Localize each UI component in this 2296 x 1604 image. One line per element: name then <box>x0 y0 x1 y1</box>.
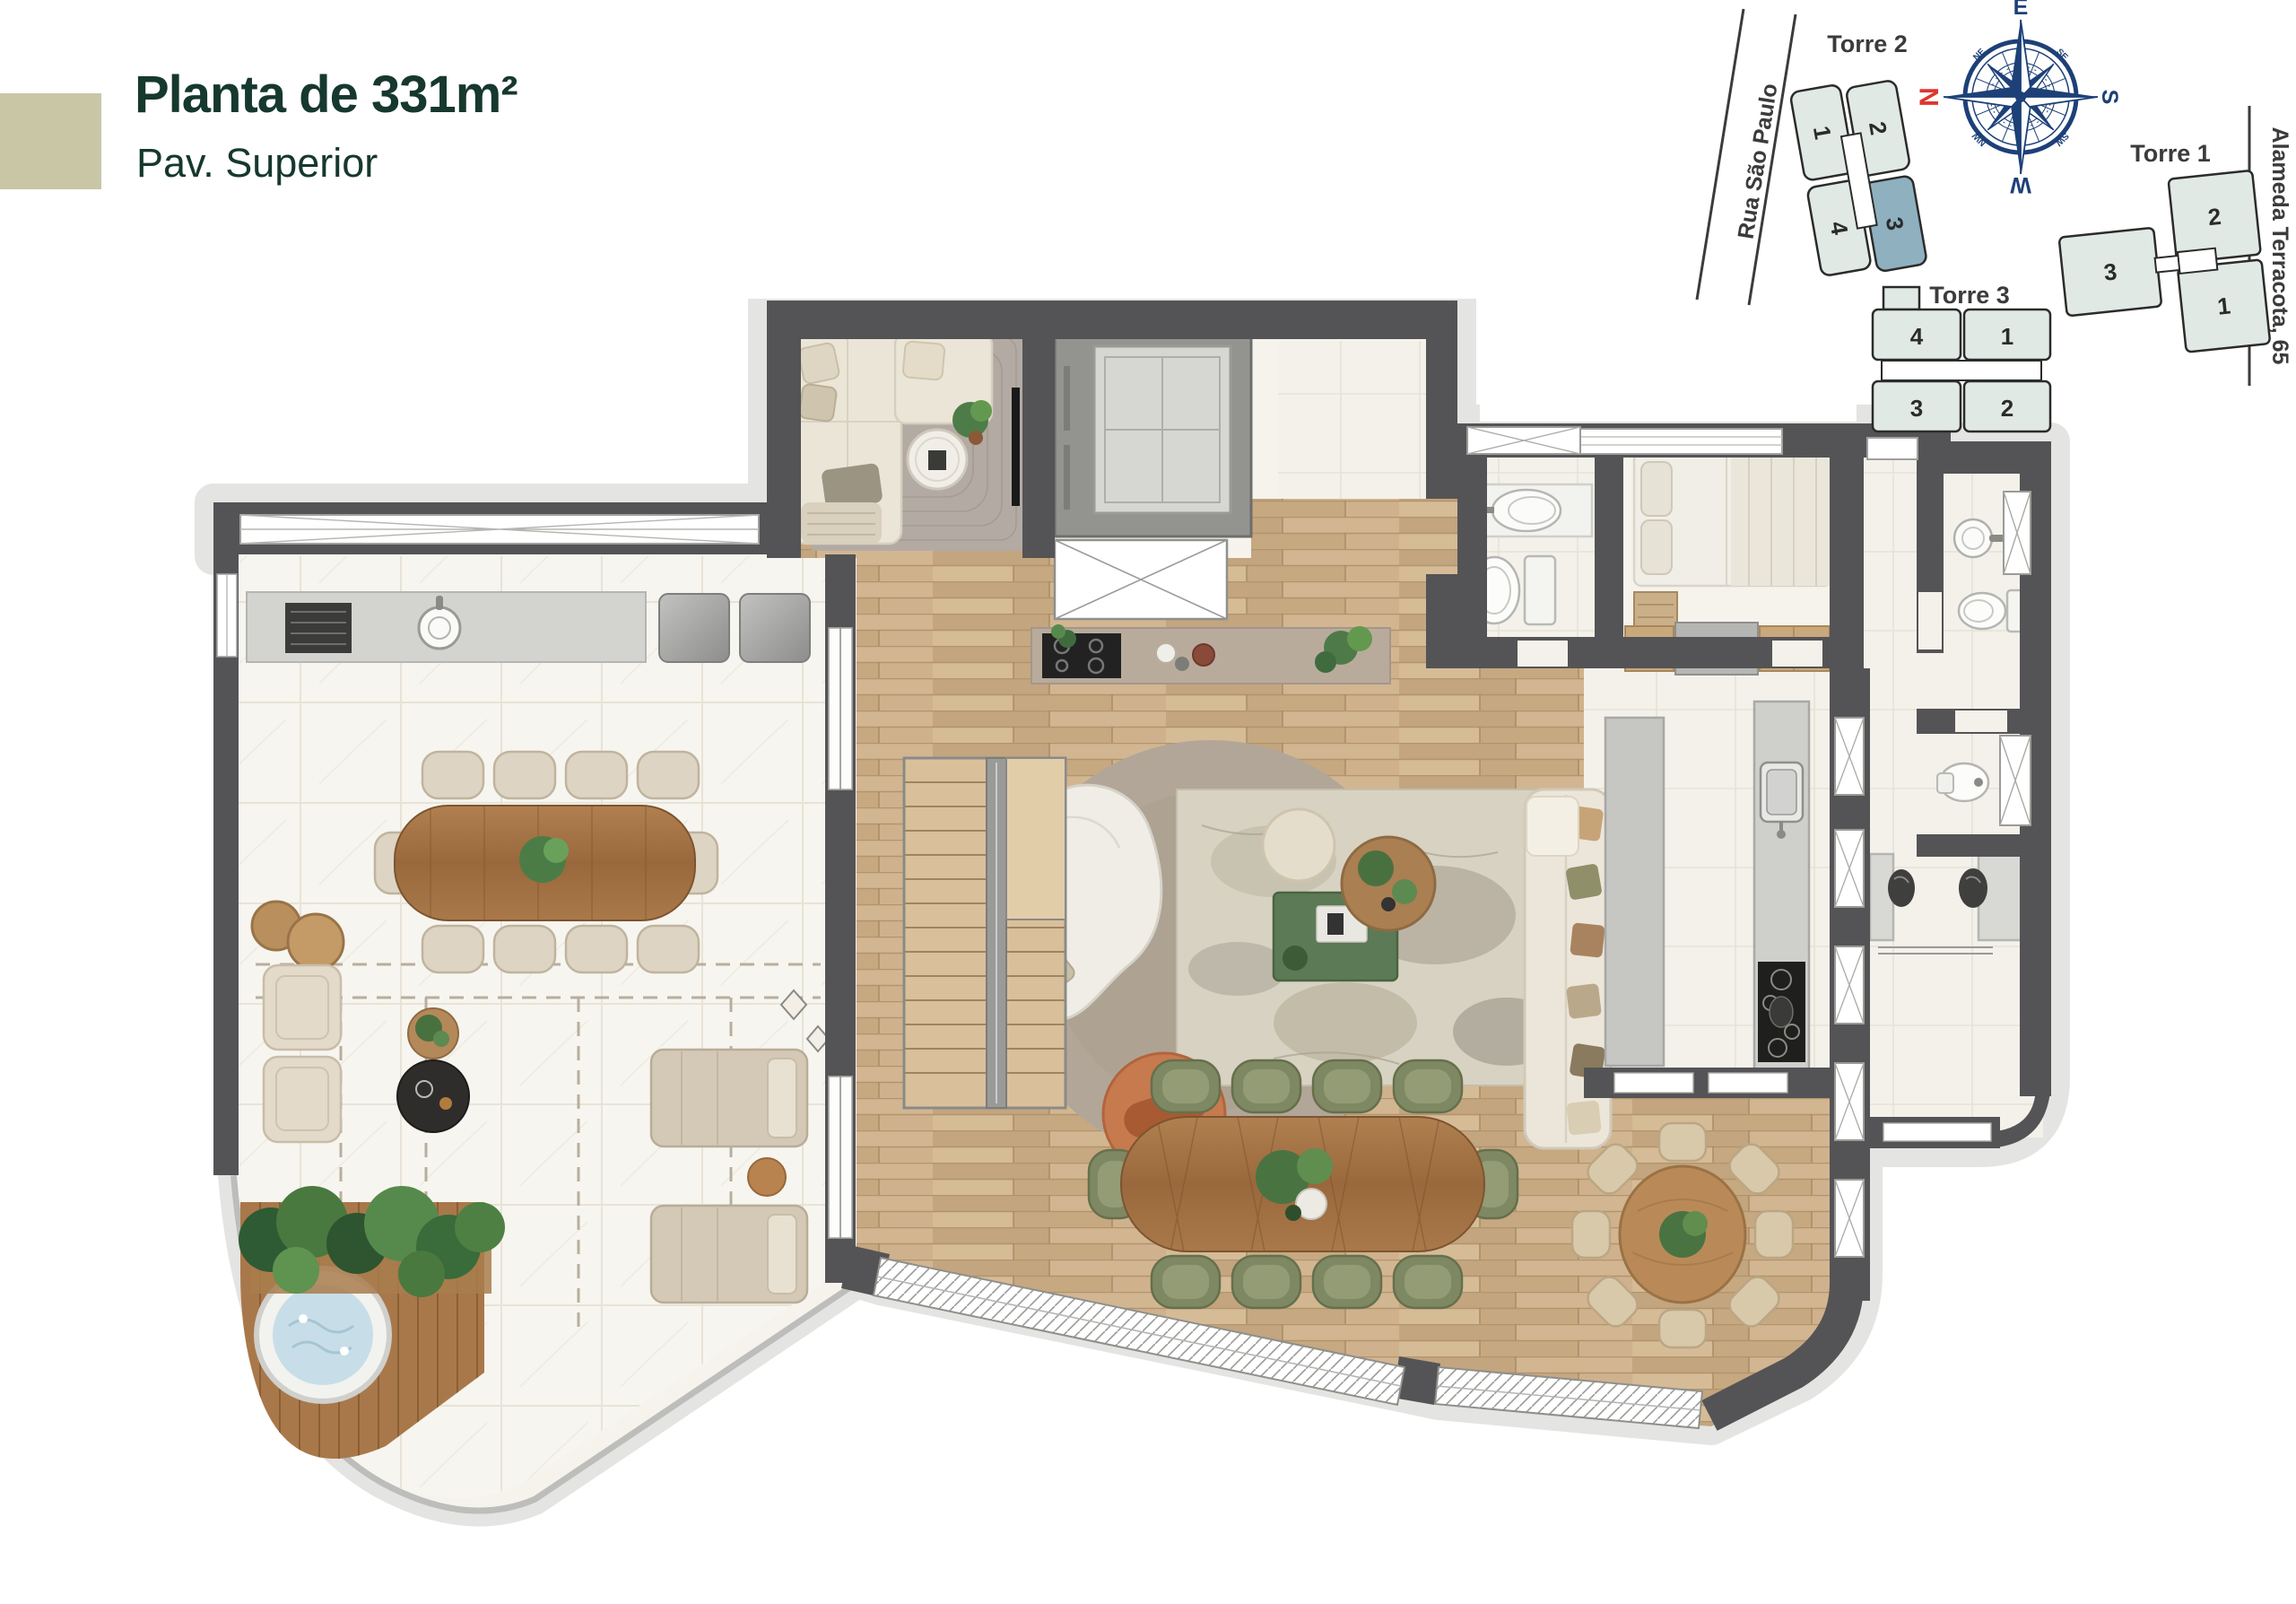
terrace-window <box>240 515 759 544</box>
outdoor-stool <box>740 594 810 662</box>
unit-label: 4 <box>1910 323 1924 350</box>
tv-panel <box>1012 388 1020 506</box>
street-right-label: Alameda Terracota, 65 <box>2267 127 2292 365</box>
tray-table <box>1342 837 1435 930</box>
tower-3: 4 1 3 2 <box>1873 287 2050 432</box>
terrace-dining-table <box>395 806 695 920</box>
washbasin <box>1954 519 1992 557</box>
tower-2: 1 2 4 3 <box>1790 74 1927 282</box>
bowl <box>1193 644 1214 666</box>
bidet <box>1492 490 1561 531</box>
compass-nw: NW <box>1970 130 1988 148</box>
outdoor-sink <box>419 607 460 649</box>
compass-north: N <box>1915 87 1944 107</box>
compass-east: E <box>2013 0 2029 20</box>
toilet-bowl <box>1959 593 2005 629</box>
cream-pouf <box>1263 809 1335 881</box>
tower-2-label: Torre 2 <box>1827 31 1908 57</box>
kitchen-island <box>1605 718 1664 1066</box>
cooktop <box>1042 633 1121 678</box>
compass-se: SE <box>2054 47 2069 62</box>
compass-ne: NE <box>1971 47 1987 63</box>
lounger-side-table <box>748 1158 786 1196</box>
site-map: Rua São Paulo Alameda Terracota, 65 1 2 … <box>1697 0 2292 432</box>
gas-cooktop <box>1758 962 1805 1062</box>
unit-label: 3 <box>1910 395 1923 422</box>
tower-1: 2 3 1 <box>2054 170 2270 364</box>
breakfast-table <box>1572 1123 1793 1347</box>
black-coffee-table <box>397 1060 469 1132</box>
unit-label: 1 <box>2001 323 2013 350</box>
buffet-counter <box>1031 624 1390 684</box>
shaft-void <box>1055 540 1227 619</box>
foyer-floor <box>1278 341 1426 499</box>
bbq-counter <box>247 592 646 662</box>
rattan-table <box>288 914 344 970</box>
compass-west: W <box>2010 172 2031 197</box>
hall-wood-floor <box>1251 499 1457 562</box>
elevator <box>1055 321 1251 619</box>
shaft-box <box>1467 427 1580 454</box>
shaft-box <box>2004 492 2031 574</box>
street-left-label: Rua São Paulo <box>1734 82 1783 240</box>
media-room <box>794 325 1027 551</box>
compass-rose: E S W N NE SE SW NW <box>1915 0 2122 197</box>
tower-1-label: Torre 1 <box>2130 140 2211 167</box>
staircase <box>904 758 1065 1108</box>
shaft-box <box>2000 736 2031 825</box>
compass-south: S <box>2097 90 2122 105</box>
outdoor-stool <box>659 594 729 662</box>
unit-label: 2 <box>2001 395 2013 422</box>
corridor-top-window <box>1867 438 1918 459</box>
dining-table <box>1121 1117 1484 1251</box>
tower-3-label: Torre 3 <box>1929 282 2010 309</box>
grill <box>285 603 352 653</box>
compass-sw: SW <box>2053 130 2071 148</box>
floor-plan-canvas: Rua São Paulo Alameda Terracota, 65 1 2 … <box>0 0 2296 1604</box>
